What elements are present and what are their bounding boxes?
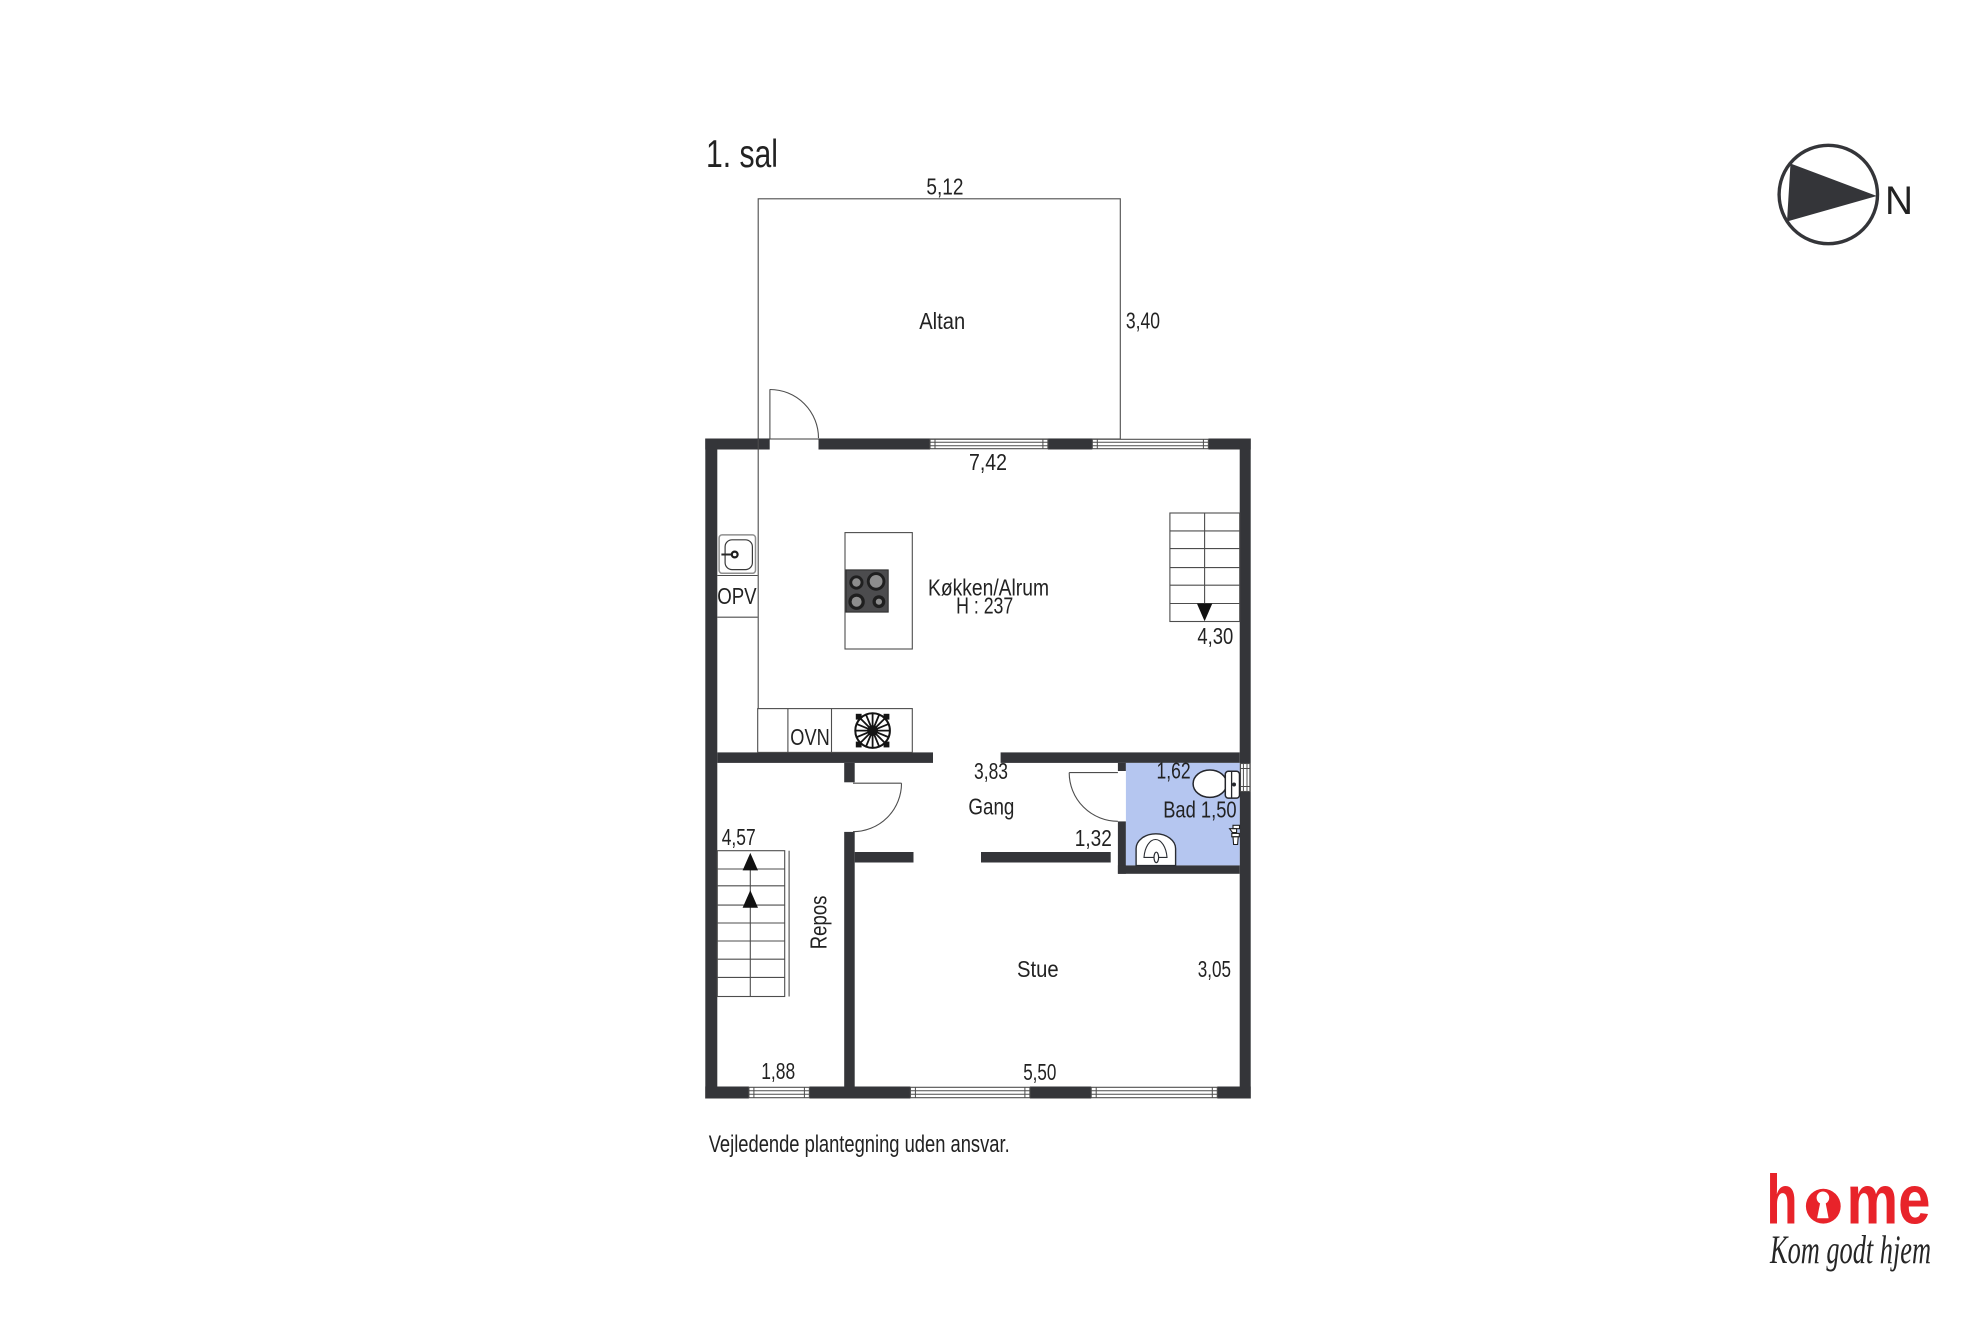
svg-text:Altan: Altan [919, 308, 965, 334]
svg-text:Stue: Stue [1017, 956, 1059, 982]
svg-text:Gang: Gang [968, 794, 1014, 820]
svg-text:5,50: 5,50 [1023, 1059, 1056, 1085]
svg-text:Repos: Repos [806, 896, 832, 950]
svg-text:1,62: 1,62 [1157, 758, 1191, 784]
svg-text:1,32: 1,32 [1075, 825, 1112, 851]
svg-text:4,57: 4,57 [722, 824, 756, 850]
svg-text:5,12: 5,12 [926, 174, 963, 200]
svg-text:OPV: OPV [717, 583, 757, 609]
svg-text:4,30: 4,30 [1197, 623, 1233, 649]
svg-text:1,88: 1,88 [761, 1058, 795, 1084]
svg-text:H : 237: H : 237 [956, 593, 1013, 619]
svg-text:N: N [1885, 179, 1913, 223]
svg-text:7,42: 7,42 [969, 449, 1007, 475]
svg-text:Kom godt hjem: Kom godt hjem [1769, 1227, 1931, 1272]
svg-text:OVN: OVN [790, 724, 829, 750]
svg-text:Vejledende plantegning uden an: Vejledende plantegning uden ansvar. [709, 1131, 1010, 1158]
svg-text:3,40: 3,40 [1126, 307, 1160, 333]
svg-text:1. sal: 1. sal [706, 133, 778, 176]
svg-text:3,83: 3,83 [974, 758, 1008, 784]
svg-text:3,05: 3,05 [1198, 956, 1231, 982]
svg-text:Bad 1,50: Bad 1,50 [1163, 797, 1236, 823]
